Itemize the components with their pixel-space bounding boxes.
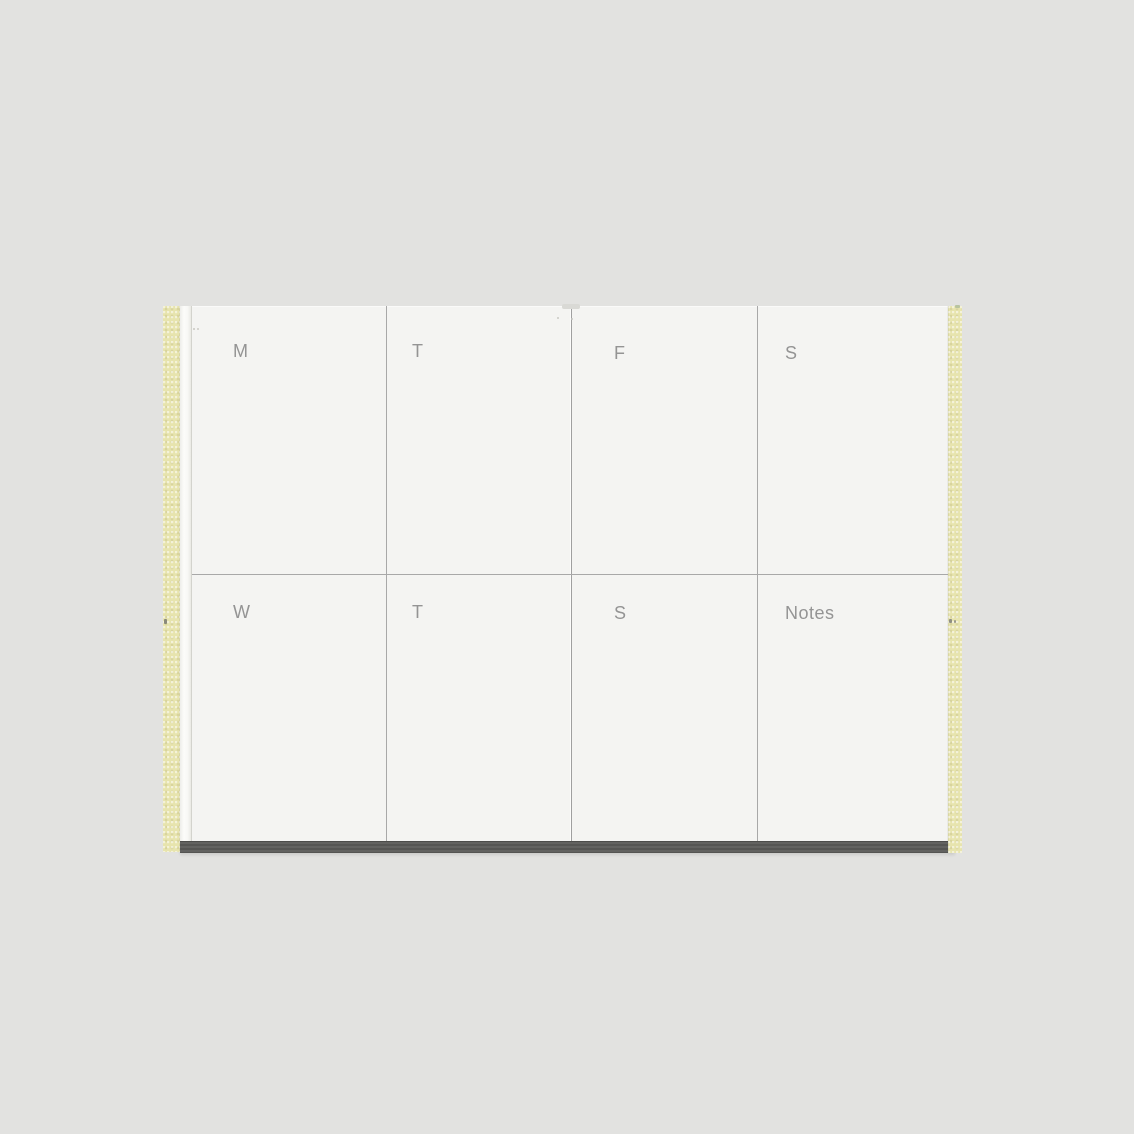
photo-background: M T F S W T S Notes [0,0,1134,1134]
chipboard-base-bar [180,841,955,853]
cell-label-friday: F [614,344,626,362]
paper-speck [193,328,195,330]
edge-mark-top-right [955,305,960,308]
cell-label-tuesday: T [412,342,424,360]
binding-strip-right [948,306,962,853]
cell-label-sunday: S [614,604,627,622]
edge-mark-left [164,619,167,624]
cell-label-saturday: S [785,344,798,362]
sheet-stack-edge [180,306,192,841]
edge-mark-right [949,619,952,623]
binding-strip-left [163,306,180,852]
edge-mark-right [954,620,956,623]
cell-label-wednesday: W [233,603,251,621]
planner-page: M T F S W T S Notes [191,306,948,841]
grid-line-horizontal [191,574,948,575]
paper-speck [557,317,559,319]
paper-speck [197,328,199,330]
cell-label-notes: Notes [785,604,835,622]
cell-label-thursday: T [412,603,424,621]
top-edge-notch [562,304,580,309]
paper-speck [571,318,573,320]
cell-label-monday: M [233,342,249,360]
